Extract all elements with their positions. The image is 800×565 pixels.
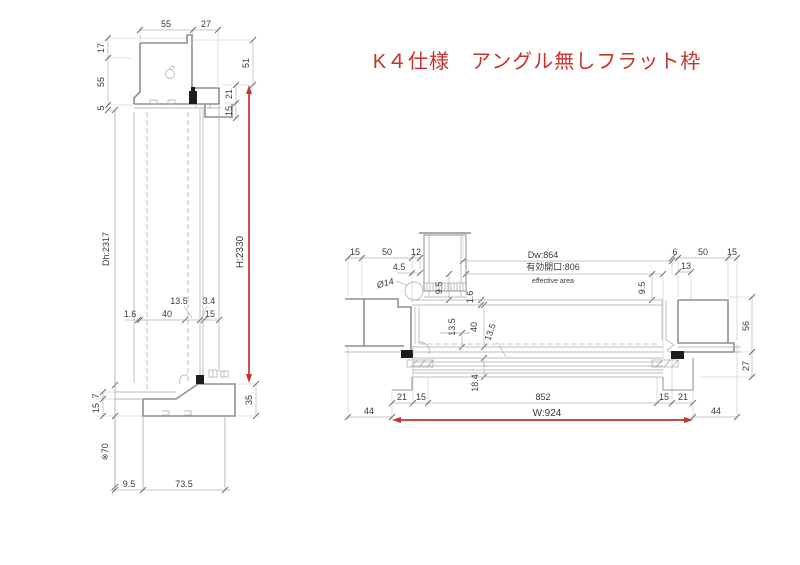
dim-tl-12: 12 (411, 247, 421, 257)
screw-hole-symbol (166, 70, 175, 79)
dim-right-21: 21 (224, 89, 234, 99)
dim-right-56: 56 (741, 321, 751, 331)
head-profile (134, 35, 232, 117)
dim-bot-44l: 44 (364, 406, 374, 416)
dim-left-17: 17 (96, 43, 106, 53)
dim-mid-40: 40 (162, 309, 172, 319)
dim-bot-7: 7 (91, 393, 101, 398)
dim-left-95: 9.5 (434, 282, 444, 295)
dim-mid-15: 15 (205, 309, 215, 319)
right-view-plan-section: 15 50 12 4.5 Ø14 9.5 Dw:864 有効開口:806 eff… (345, 233, 756, 423)
dim-bot-44r: 44 (711, 406, 721, 416)
dim-effective-area-en: effective area (532, 278, 574, 285)
left-dim-leaders (184, 306, 207, 318)
dim-mid-135b: 13.5 (482, 322, 497, 342)
door-leaf-dashed-lines (147, 112, 188, 392)
hole-circle-dia14 (405, 282, 423, 300)
dim-right-15: 15 (224, 106, 234, 116)
dim-tl-50: 50 (382, 247, 392, 257)
dim-bot-21r: 21 (678, 392, 688, 402)
dim-bot-95: 9.5 (123, 479, 136, 489)
dim-mid-135a: 13.5 (447, 318, 457, 336)
left-wall-profile (345, 299, 411, 351)
dim-tr-6: 6 (672, 247, 677, 257)
dim-overall-height: H:2330 (235, 235, 246, 268)
head-gasket-seal (189, 91, 197, 104)
door-leaf-band (412, 358, 663, 377)
below-sill-lines (143, 416, 225, 487)
dim-left-55: 55 (96, 77, 106, 87)
right-wall-profile (678, 300, 734, 352)
left-jamb-seal (401, 350, 413, 358)
dim-bot-735: 73.5 (175, 479, 193, 489)
dim-dw: Dw:864 (528, 250, 559, 260)
left-view-vertical-section: 55 27 17 55 5 51 21 15 Dh:2317 H:2330 13… (91, 19, 260, 493)
dim-top-55: 55 (161, 19, 171, 29)
dim-right-95: 9.5 (637, 282, 647, 295)
dim-overall-width: W:924 (533, 408, 562, 419)
band-end-steps (392, 358, 693, 390)
right-jamb-lines (662, 300, 741, 355)
dim-right-51: 51 (241, 58, 251, 68)
dim-bot-15l: 15 (416, 392, 426, 402)
sill-detail-lines (115, 375, 191, 415)
dim-top-27: 27 (201, 19, 211, 29)
dim-mid-34: 3.4 (203, 296, 216, 306)
dim-mid-135: 13.5 (170, 296, 188, 306)
red-arrow-down (246, 374, 252, 383)
dim-mid-40: 40 (469, 322, 479, 332)
dim-tl-15: 15 (350, 247, 360, 257)
dim-bot-15: 15 (91, 403, 101, 413)
dim-left-5: 5 (96, 105, 106, 110)
dim-mid-184: 18.4 (470, 374, 480, 392)
head-gasket-cap (191, 87, 195, 91)
dim-dia14: Ø14 (375, 276, 395, 290)
dim-bot-ref70: ※70 (100, 443, 110, 461)
dim-bot-21l: 21 (397, 392, 407, 402)
drawing-svg: K４仕様 アングル無しフラット枠 55 27 (0, 0, 800, 565)
dim-right-27: 27 (741, 361, 751, 371)
dim-mid-16: 1.6 (465, 291, 475, 304)
dim-bot-852: 852 (535, 392, 550, 402)
red-arrow-left (392, 417, 401, 423)
dim-tr-50: 50 (698, 247, 708, 257)
sill-gasket-seal (196, 375, 204, 384)
dim-door-height: Dh:2317 (101, 232, 111, 266)
right-jamb-seal (671, 351, 684, 359)
drawing-title: K４仕様 アングル無しフラット枠 (373, 50, 702, 73)
cad-drawing-sheet: K４仕様 アングル無しフラット枠 55 27 (0, 0, 800, 565)
dim-effective-opening: 有効開口:806 (526, 261, 580, 272)
dim-bot-15r: 15 (659, 392, 669, 402)
dim-tr-13: 13 (681, 261, 691, 271)
sill-gasket-clips (209, 370, 228, 377)
dim-tr-15: 15 (727, 247, 737, 257)
dim-mid-16: 1.6 (124, 309, 137, 319)
dim-bot-35: 35 (244, 395, 254, 405)
dim-tl-45: 4.5 (393, 262, 406, 272)
